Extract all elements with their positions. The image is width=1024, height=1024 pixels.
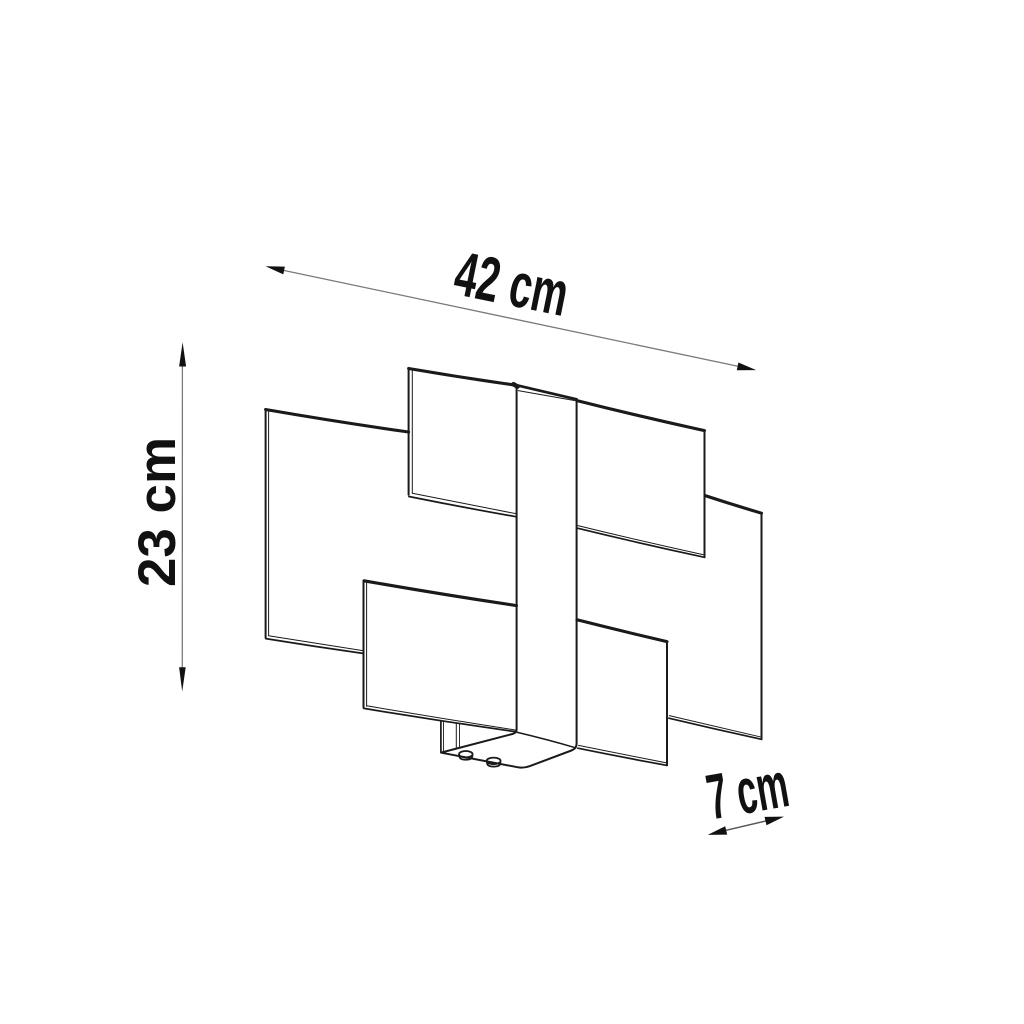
svg-text:23 cm: 23 cm <box>128 437 187 587</box>
svg-text:7 cm: 7 cm <box>701 748 793 833</box>
